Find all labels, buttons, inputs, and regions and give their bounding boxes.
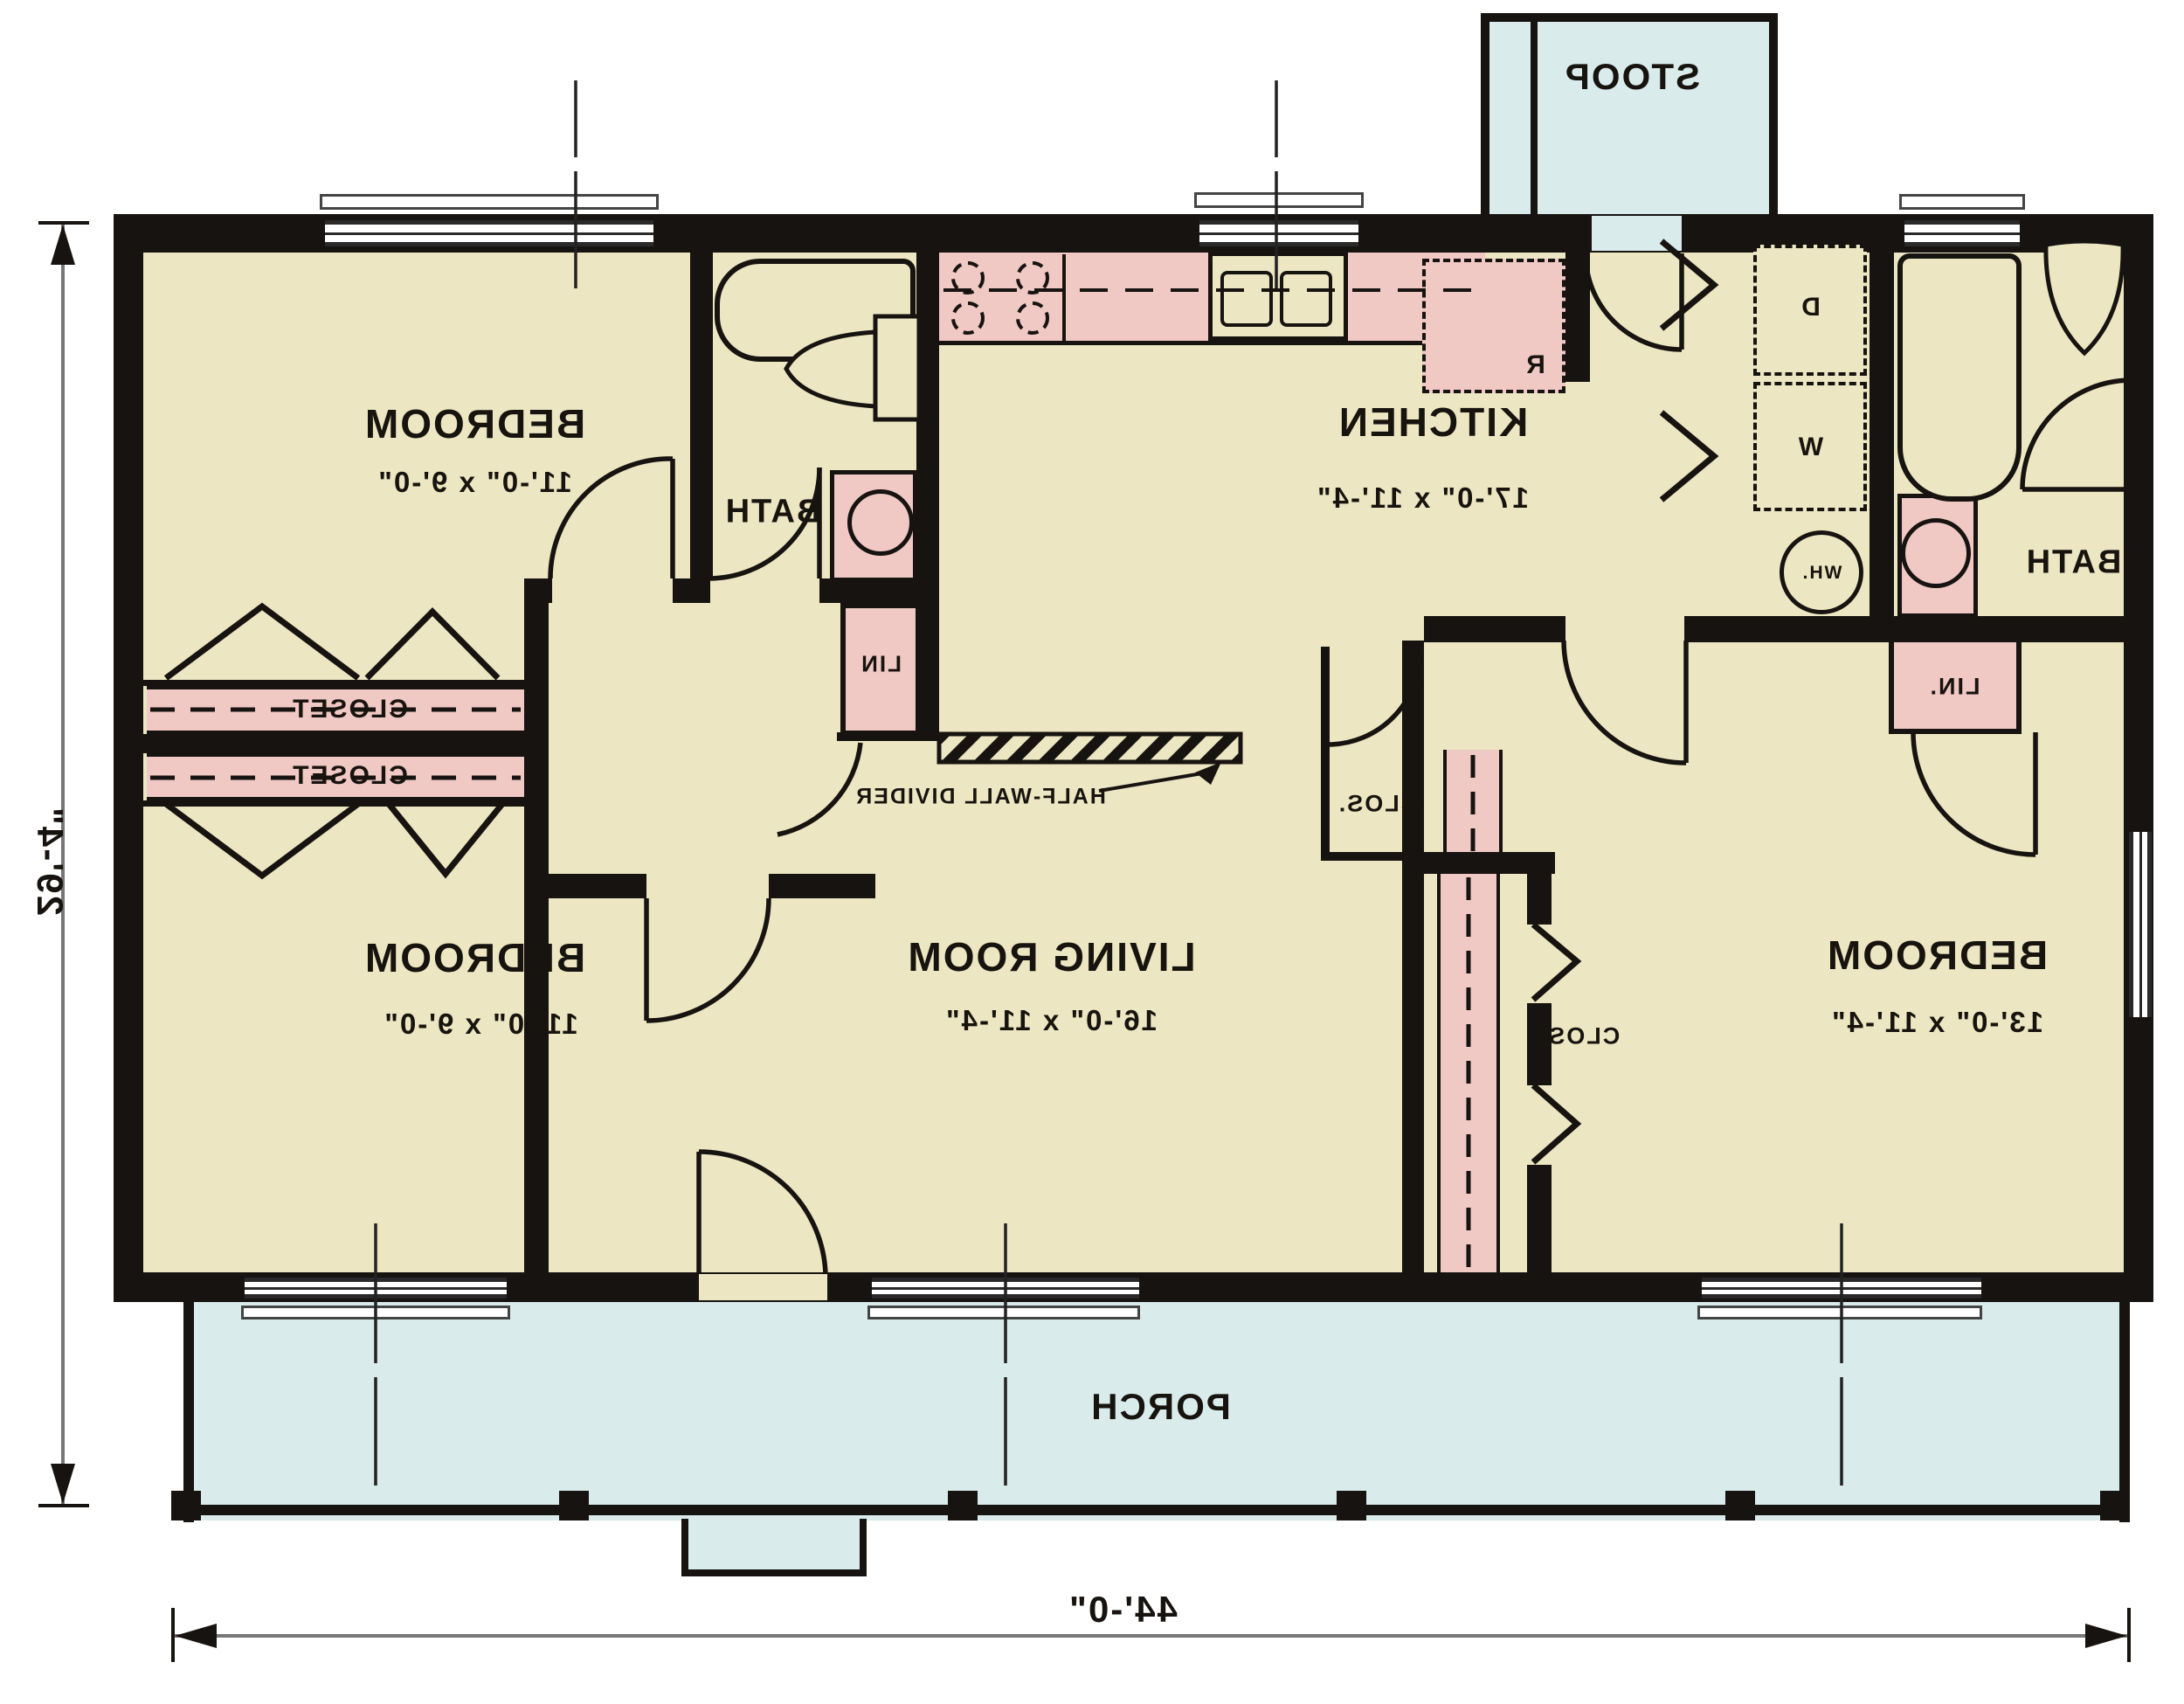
window-bedroom1-top	[325, 220, 653, 246]
window-sill	[1697, 1306, 1982, 1320]
window-kitchen-top	[1199, 220, 1358, 246]
window-bedroom3-bottom	[1702, 1278, 1981, 1299]
window-sill	[320, 194, 659, 210]
bedroom-2-dims: 11'-0" x 9'-0"	[383, 1008, 578, 1041]
linen-right-label: LIN.	[1929, 674, 1980, 701]
wall-linen-left-east	[920, 580, 939, 741]
window-bath-right-top	[1904, 220, 2020, 246]
closet-lower-label: CLOSET	[291, 761, 408, 791]
wall-hall-bottom-stub2	[769, 874, 875, 898]
bedroom3-closet-rod	[1437, 872, 1500, 1272]
bedroom-3-dims: 13'-0" x 11'-4"	[1830, 1006, 2043, 1039]
porch-edge-left	[183, 1302, 194, 1522]
kitchen-sink-bowl	[1280, 271, 1332, 327]
window-bedroom3-right	[2129, 832, 2152, 1017]
living-room-dims: 16'-0" x 11'-4"	[944, 1004, 1158, 1037]
bath-right-label: BATH	[2025, 544, 2122, 582]
porch-post	[1725, 1491, 1755, 1520]
porch-edge-right	[2119, 1302, 2130, 1522]
refrigerator-label: R	[1524, 350, 1545, 380]
overall-width-dimension: 44'-0"	[1068, 1589, 1178, 1631]
bedroom3-closet-label: CLOS.	[1539, 1023, 1621, 1050]
kitchen-dims: 17'-0" x 11'-4"	[1316, 481, 1529, 515]
linen-left-label: LIN	[860, 651, 902, 678]
porch-post	[2100, 1491, 2130, 1520]
sink-left-basin	[847, 489, 914, 556]
wall-hallcloset-west	[1321, 647, 1330, 861]
bathtub-right	[1897, 253, 2022, 502]
stoop-door-opening	[1592, 216, 1682, 251]
bath-left-label: BATH	[724, 494, 821, 531]
window-sill	[241, 1306, 510, 1320]
porch-rail	[183, 1505, 2130, 1515]
window-living-bottom	[872, 1278, 1139, 1299]
sink-right-basin	[1901, 518, 1971, 588]
wall-closet-front-stub3	[1527, 1165, 1552, 1276]
wall-bath-left-west	[690, 253, 713, 580]
porch-post	[559, 1491, 589, 1520]
wall-exterior-left	[114, 214, 143, 1302]
overall-depth-dimension: 29'-4"	[29, 806, 71, 916]
wall-exterior-right	[2124, 214, 2153, 1302]
bedroom-2-label: BEDROOM	[363, 934, 585, 981]
hall-closet-rod	[1443, 750, 1503, 863]
living-room-label: LIVING ROOM	[906, 933, 1195, 980]
stoop-floor	[1481, 13, 1778, 223]
kitchen-label: KITCHEN	[1337, 398, 1528, 446]
hall-closet-label: CLOS.	[1337, 791, 1419, 818]
wall-living-closet	[1402, 641, 1424, 1276]
closet-upper-label: CLOSET	[291, 695, 408, 724]
wall-kitchen-hall-stub	[1565, 253, 1590, 382]
wall-closet-front-stub1	[1527, 874, 1552, 925]
wall-closet-middle	[140, 734, 531, 753]
bathtub-left	[715, 259, 916, 362]
bedroom-1-dims: 11'-0" x 9'-0"	[377, 466, 572, 499]
wall-closet-split	[1424, 852, 1555, 874]
water-heater-label: WH.	[1801, 563, 1842, 584]
dryer-label: D	[1800, 293, 1821, 322]
wall-linen-left-bottom	[837, 732, 939, 741]
stoop-label: STOOP	[1564, 56, 1700, 98]
porch-post	[948, 1491, 978, 1520]
wall-bedroom3-top-stub1	[1424, 616, 1565, 642]
wall-closet-bottom	[140, 800, 531, 807]
bedroom-1-label: BEDROOM	[363, 400, 585, 447]
window-sill	[1899, 194, 2025, 210]
kitchen-sink-bowl	[1220, 271, 1273, 327]
floor-plan: BEDROOM 11'-0" x 9'-0" BATH KITCHEN 17'-…	[0, 0, 2184, 1704]
wall-bedroom3-top-stub2	[1684, 616, 1870, 642]
porch-post	[171, 1491, 201, 1520]
porch-step	[681, 1519, 867, 1576]
window-sill	[1194, 192, 1364, 208]
window-sill	[867, 1306, 1140, 1320]
stoop-divider	[1531, 22, 1538, 216]
washer-label: W	[1797, 433, 1823, 462]
wall-hallcloset-south	[1321, 852, 1427, 861]
wall-hall-top-stub2	[673, 578, 710, 603]
wall-bath-left-east	[916, 253, 939, 585]
wall-hall-bottom-stub1	[549, 874, 646, 898]
half-wall-divider-label: HALF-WALL DIVIDER	[854, 785, 1106, 810]
window-bedroom2-bottom	[245, 1278, 507, 1299]
wall-bath-right-bottom	[1870, 616, 2153, 642]
front-door-opening	[699, 1274, 827, 1300]
porch-post	[1337, 1491, 1366, 1520]
wall-laundry-bath	[1870, 253, 1894, 641]
bedroom-3-label: BEDROOM	[1826, 932, 2048, 979]
porch-label: PORCH	[1089, 1386, 1231, 1428]
wall-closet-top	[140, 680, 531, 686]
